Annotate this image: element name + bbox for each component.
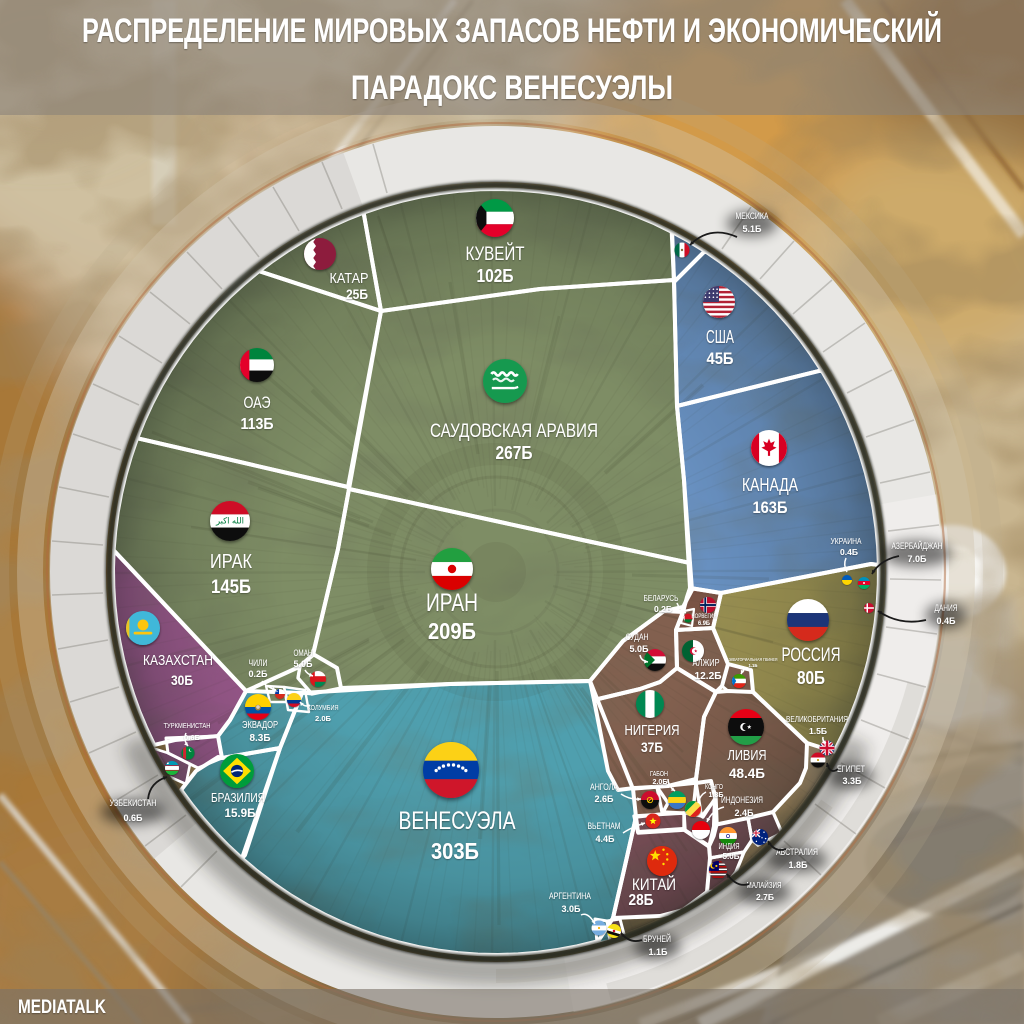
svg-text:1.8Б: 1.8Б [789, 860, 809, 870]
svg-text:28Б: 28Б [629, 892, 654, 909]
svg-text:НИГЕРИЯ: НИГЕРИЯ [625, 722, 680, 739]
svg-text:МАЛАЙЗИЯ: МАЛАЙЗИЯ [747, 879, 782, 890]
svg-text:ИРАК: ИРАК [210, 551, 252, 573]
svg-text:АРГЕНТИНА: АРГЕНТИНА [549, 891, 591, 901]
svg-text:37Б: 37Б [641, 739, 663, 755]
svg-text:2.0Б: 2.0Б [315, 714, 332, 723]
svg-text:АВСТРАЛИЯ: АВСТРАЛИЯ [776, 847, 818, 857]
svg-text:УКРАИНА: УКРАИНА [831, 536, 862, 546]
svg-text:4.4Б: 4.4Б [596, 834, 616, 844]
svg-text:РОССИЯ: РОССИЯ [782, 645, 841, 666]
svg-text:ЭКВАТОРИАЛЬНАЯ ГВИНЕЯ: ЭКВАТОРИАЛЬНАЯ ГВИНЕЯ [729, 657, 778, 662]
svg-text:РАСПРЕДЕЛЕНИЕ МИРОВЫХ ЗАПАСОВ: РАСПРЕДЕЛЕНИЕ МИРОВЫХ ЗАПАСОВ НЕФТИ И ЭК… [82, 11, 942, 50]
svg-text:5.0Б: 5.0Б [630, 644, 650, 654]
svg-text:2.0Б: 2.0Б [653, 779, 668, 786]
svg-text:2.6Б: 2.6Б [595, 794, 615, 804]
svg-text:США: США [706, 327, 734, 347]
svg-text:15.9Б: 15.9Б [225, 806, 256, 820]
svg-text:ЭКВАДОР: ЭКВАДОР [242, 720, 278, 731]
svg-text:25Б: 25Б [346, 286, 368, 302]
svg-text:ЛИВИЯ: ЛИВИЯ [728, 747, 767, 764]
svg-text:5.0Б: 5.0Б [723, 852, 740, 861]
svg-text:ГАБОН: ГАБОН [650, 771, 668, 778]
svg-text:МЕКСИКА: МЕКСИКА [736, 211, 769, 221]
svg-text:5.0Б: 5.0Б [294, 659, 314, 669]
svg-text:ОАЭ: ОАЭ [244, 393, 271, 412]
svg-text:0.4Б: 0.4Б [937, 616, 957, 626]
svg-text:БЕЛАРУСЬ: БЕЛАРУСЬ [644, 593, 679, 603]
svg-text:ЧИЛИ: ЧИЛИ [249, 658, 268, 668]
svg-text:30Б: 30Б [171, 672, 193, 688]
svg-text:الله اكبر: الله اكبر [215, 516, 244, 526]
svg-text:1.1Б: 1.1Б [749, 663, 759, 668]
svg-text:ИНДОНЕЗИЯ: ИНДОНЕЗИЯ [721, 795, 763, 805]
svg-text:СУДАН: СУДАН [626, 632, 649, 642]
svg-text:MEDIATALK: MEDIATALK [18, 997, 106, 1018]
svg-text:8.3Б: 8.3Б [250, 733, 271, 744]
svg-text:45Б: 45Б [707, 349, 734, 368]
svg-text:АНГОЛА: АНГОЛА [590, 782, 618, 792]
svg-text:ВЬЕТНАМ: ВЬЕТНАМ [588, 821, 621, 831]
svg-text:ДАНИЯ: ДАНИЯ [935, 603, 958, 613]
svg-text:2.7Б: 2.7Б [756, 892, 774, 902]
svg-text:ВЕНЕСУЭЛА: ВЕНЕСУЭЛА [399, 807, 516, 835]
svg-text:80Б: 80Б [797, 668, 825, 688]
svg-text:АЗЕРБАЙДЖАН: АЗЕРБАЙДЖАН [892, 540, 943, 551]
svg-text:1.5Б: 1.5Б [809, 726, 827, 736]
svg-text:ТУРКМЕНИСТАН: ТУРКМЕНИСТАН [164, 721, 211, 730]
svg-text:267Б: 267Б [496, 443, 533, 463]
svg-text:ПАРАДОКС ВЕНЕСУЭЛЫ: ПАРАДОКС ВЕНЕСУЭЛЫ [351, 69, 673, 107]
svg-text:7.0Б: 7.0Б [908, 554, 928, 564]
svg-text:6.9Б: 6.9Б [698, 621, 711, 627]
svg-text:48.4Б: 48.4Б [729, 765, 765, 781]
svg-text:АЛЖИР: АЛЖИР [693, 657, 720, 669]
svg-text:ИРАН: ИРАН [426, 589, 478, 617]
svg-text:КУВЕЙТ: КУВЕЙТ [466, 243, 525, 265]
svg-text:САУДОВСКАЯ АРАВИЯ: САУДОВСКАЯ АРАВИЯ [430, 421, 598, 442]
svg-text:5.1Б: 5.1Б [743, 224, 763, 234]
svg-text:0.6Б: 0.6Б [184, 733, 201, 742]
svg-text:3.0Б: 3.0Б [562, 904, 582, 914]
svg-text:113Б: 113Б [241, 416, 274, 433]
svg-text:0.2Б: 0.2Б [249, 669, 269, 679]
svg-text:0.6Б: 0.6Б [124, 813, 144, 823]
svg-text:КАНАДА: КАНАДА [742, 475, 798, 495]
svg-text:КАТАР: КАТАР [330, 270, 369, 287]
svg-text:0.4Б: 0.4Б [840, 547, 858, 557]
svg-text:163Б: 163Б [753, 498, 788, 517]
svg-text:НОРВЕГИЯ: НОРВЕГИЯ [692, 614, 717, 620]
svg-text:1.1Б: 1.1Б [649, 947, 669, 957]
svg-text:КОНГО: КОНГО [705, 784, 723, 791]
svg-text:ОМАН: ОМАН [294, 648, 313, 658]
svg-text:БРАЗИЛИЯ: БРАЗИЛИЯ [211, 790, 265, 805]
svg-text:145Б: 145Б [211, 577, 251, 598]
svg-text:2.4Б: 2.4Б [735, 808, 755, 818]
svg-text:102Б: 102Б [477, 266, 514, 286]
svg-text:УЗБЕКИСТАН: УЗБЕКИСТАН [110, 798, 157, 808]
svg-text:0.2Б: 0.2Б [654, 604, 672, 614]
svg-text:303Б: 303Б [431, 838, 479, 864]
svg-text:ЕГИПЕТ: ЕГИПЕТ [837, 764, 865, 774]
svg-text:209Б: 209Б [428, 618, 476, 644]
svg-text:БРУНЕЙ: БРУНЕЙ [643, 933, 671, 944]
svg-text:3.3Б: 3.3Б [843, 776, 863, 786]
svg-text:КОЛУМБИЯ: КОЛУМБИЯ [308, 703, 339, 712]
svg-text:КАЗАХСТАН: КАЗАХСТАН [143, 652, 213, 669]
svg-text:ВЕЛИКОБРИТАНИЯ: ВЕЛИКОБРИТАНИЯ [786, 714, 848, 724]
svg-text:12.2Б: 12.2Б [695, 670, 722, 682]
svg-text:ИНДИЯ: ИНДИЯ [719, 842, 740, 851]
